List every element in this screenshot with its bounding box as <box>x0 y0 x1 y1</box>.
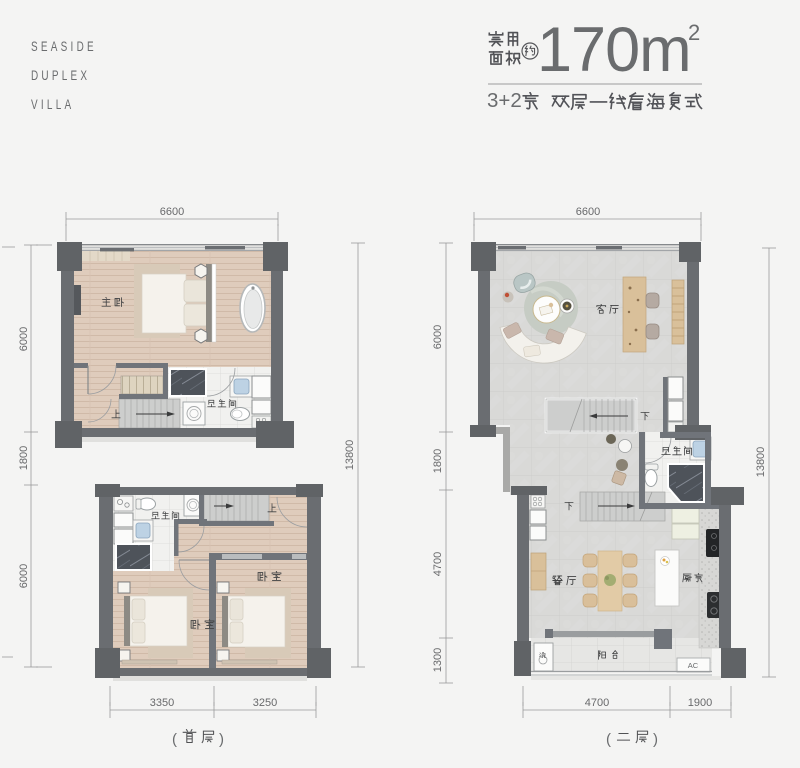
svg-text:13800: 13800 <box>755 447 767 478</box>
svg-text:6000: 6000 <box>18 327 30 351</box>
svg-text:(: ( <box>172 731 177 748</box>
svg-text:SEASIDE: SEASIDE <box>31 38 97 54</box>
svg-text:3350: 3350 <box>150 697 174 709</box>
svg-text:VILLA: VILLA <box>31 96 74 112</box>
svg-text:6000: 6000 <box>18 564 30 588</box>
svg-text:1900: 1900 <box>688 697 712 709</box>
svg-text:1800: 1800 <box>18 446 30 470</box>
svg-text:3250: 3250 <box>253 697 277 709</box>
svg-text:DUPLEX: DUPLEX <box>31 67 90 83</box>
svg-text:): ) <box>653 731 658 748</box>
svg-text:AC: AC <box>688 661 699 670</box>
svg-text:1300: 1300 <box>432 648 444 672</box>
svg-text:3+2: 3+2 <box>487 89 522 112</box>
svg-text:6000: 6000 <box>432 325 444 349</box>
svg-text:6600: 6600 <box>576 206 600 218</box>
svg-text:1800: 1800 <box>432 449 444 473</box>
svg-text:4700: 4700 <box>585 697 609 709</box>
svg-text:(: ( <box>606 731 611 748</box>
svg-text:2: 2 <box>688 20 700 45</box>
svg-text:13800: 13800 <box>344 440 356 471</box>
svg-text:6600: 6600 <box>160 206 184 218</box>
svg-text:4700: 4700 <box>432 552 444 576</box>
svg-text:): ) <box>219 731 224 748</box>
svg-text:170m: 170m <box>537 15 691 85</box>
